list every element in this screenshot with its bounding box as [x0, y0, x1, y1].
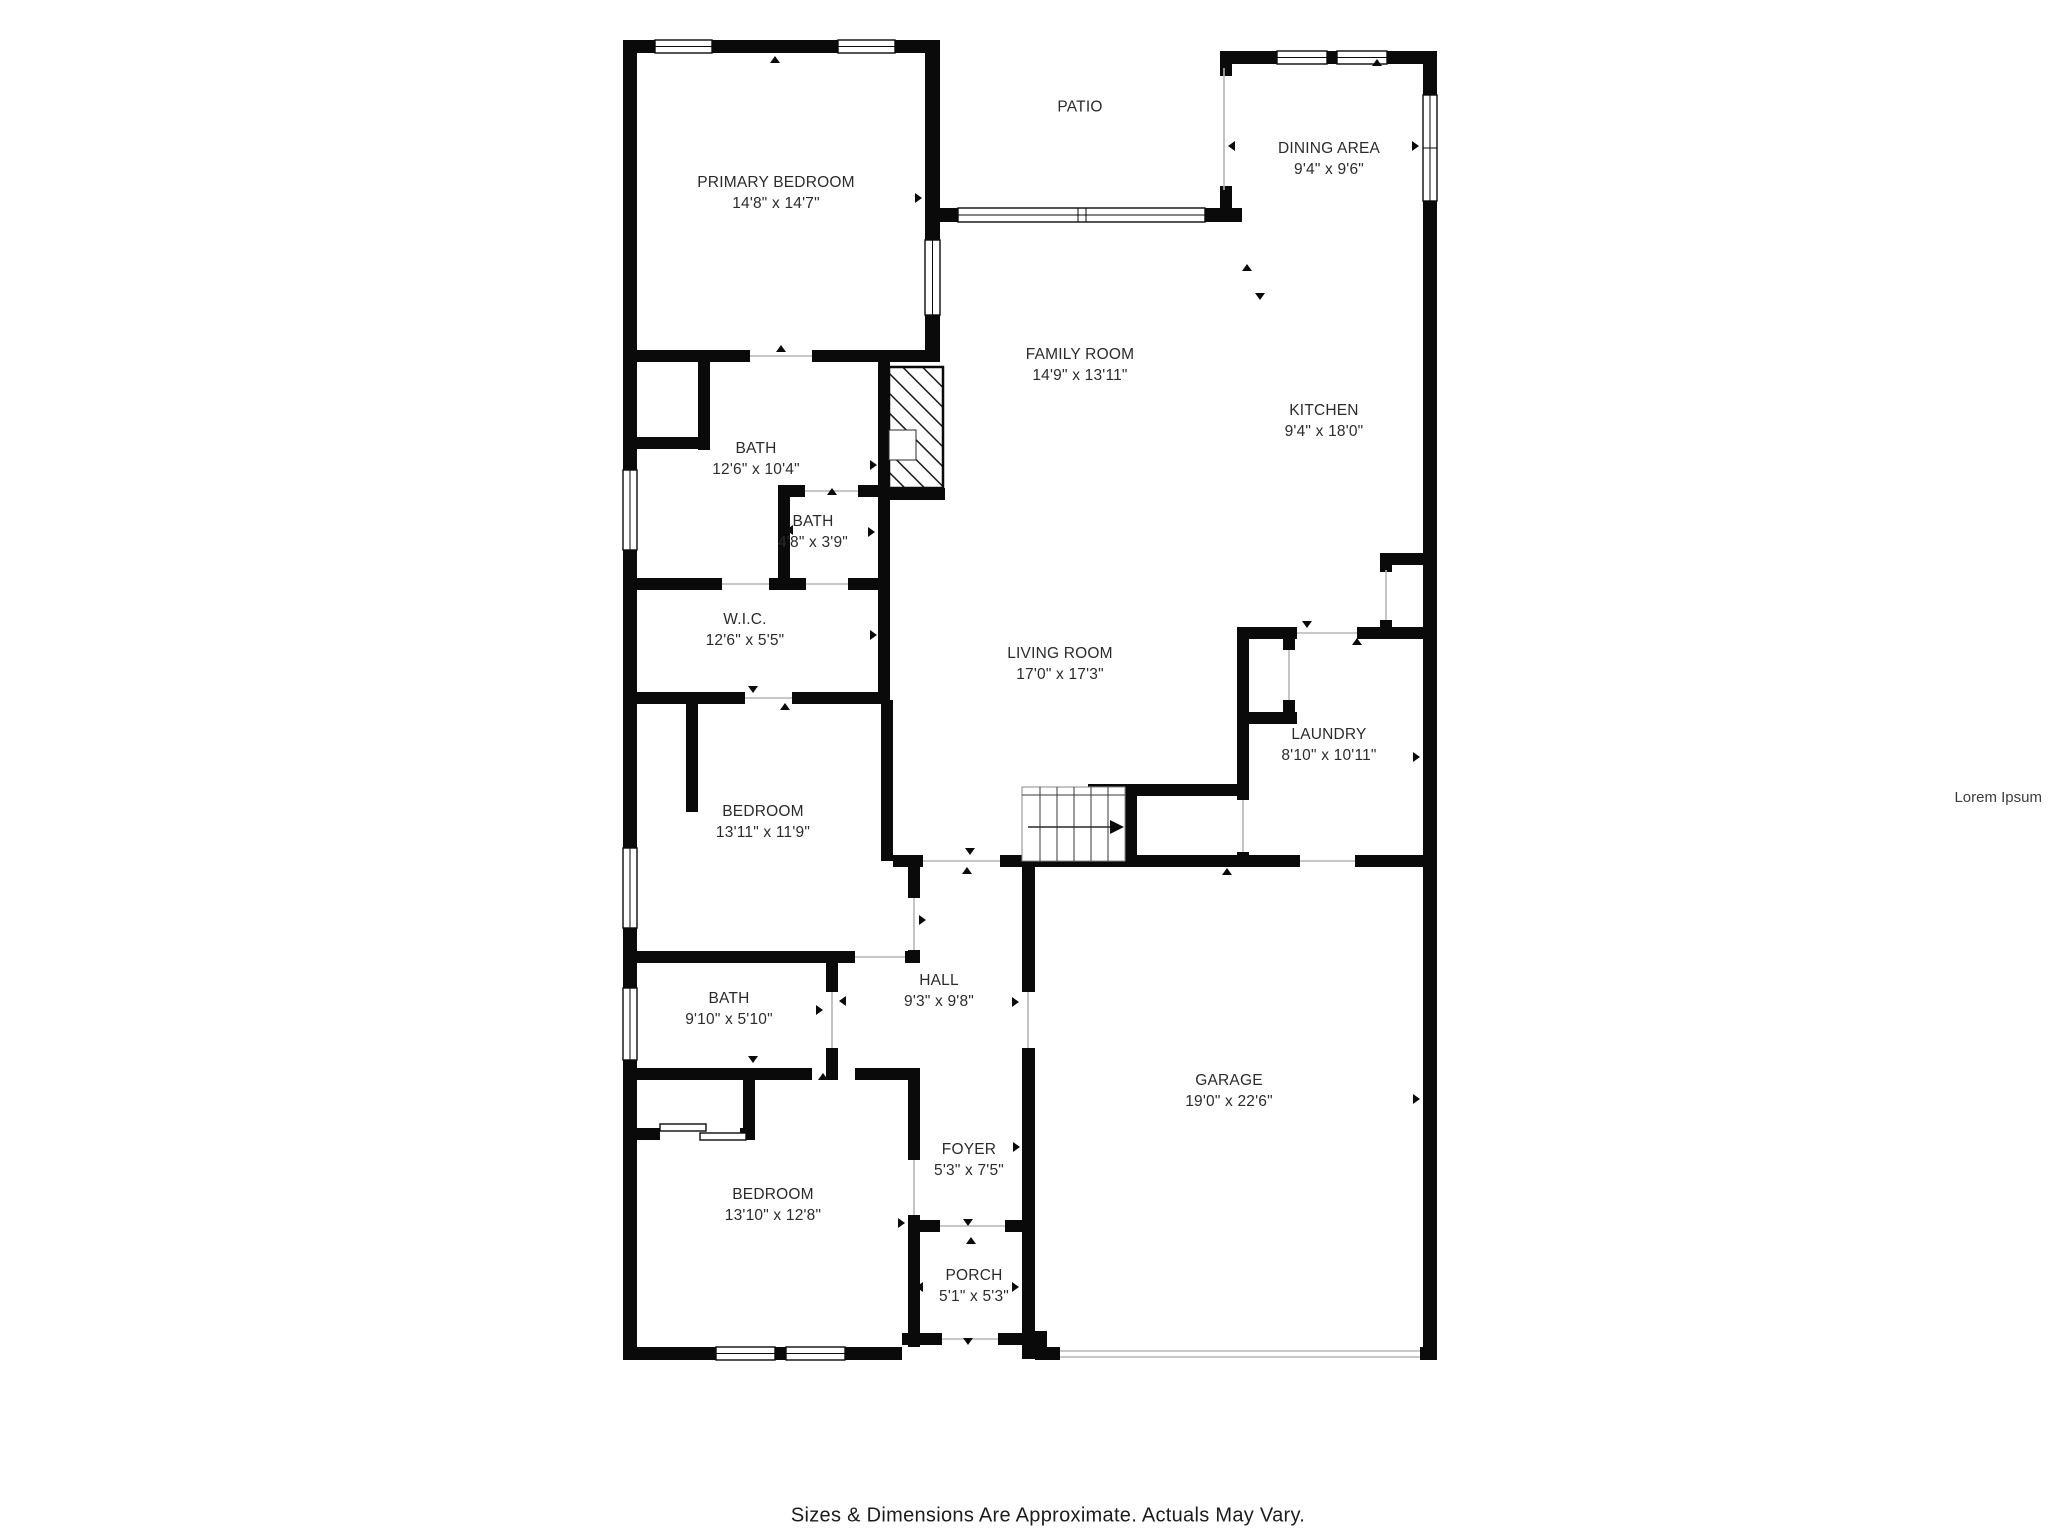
- room-label-laundry: LAUNDRY 8'10" x 10'11": [1281, 724, 1376, 766]
- room-label-garage: GARAGE 19'0" x 22'6": [1185, 1070, 1273, 1112]
- room-dims: 12'6" x 10'4": [712, 459, 800, 480]
- room-dims: 14'9" x 13'11": [1026, 365, 1134, 386]
- room-dims: 9'4" x 18'0": [1285, 421, 1364, 442]
- room-label-kitchen: KITCHEN 9'4" x 18'0": [1285, 400, 1364, 442]
- room-label-hall: HALL 9'3" x 9'8": [904, 970, 974, 1012]
- room-name: BATH: [685, 988, 773, 1009]
- room-label-dining-area: DINING AREA 9'4" x 9'6": [1278, 138, 1380, 180]
- room-dims: 4'8" x 3'9": [778, 532, 848, 553]
- room-dims: 9'4" x 9'6": [1278, 159, 1380, 180]
- window: [1337, 51, 1387, 64]
- window: [623, 470, 637, 550]
- room-dims: 17'0" x 17'3": [1007, 664, 1113, 685]
- room-dims: 13'10" x 12'8": [725, 1205, 821, 1226]
- footer-disclaimer: Sizes & Dimensions Are Approximate. Actu…: [791, 1505, 1305, 1528]
- door-openings: [722, 68, 1420, 1357]
- closet-sliding-door: [660, 1124, 746, 1140]
- room-label-bedroom-2: BEDROOM 13'11" x 11'9": [716, 801, 810, 843]
- sliding-glass-door: [958, 208, 1205, 222]
- room-dims: 12'6" x 5'5": [706, 630, 785, 651]
- room-label-bath-primary: BATH 12'6" x 10'4": [712, 438, 800, 480]
- page: { "watermark": "Lorem Ipsum", "footer": …: [0, 0, 2048, 1536]
- room-name: W.I.C.: [706, 609, 785, 630]
- window: [838, 40, 895, 53]
- room-label-foyer: FOYER 5'3" x 7'5": [934, 1139, 1004, 1181]
- room-label-primary-bedroom: PRIMARY BEDROOM 14'8" x 14'7": [697, 172, 854, 214]
- room-name: PRIMARY BEDROOM: [697, 172, 854, 193]
- room-dims: 9'3" x 9'8": [904, 991, 974, 1012]
- room-label-living-room: LIVING ROOM 17'0" x 17'3": [1007, 643, 1113, 685]
- room-label-wic: W.I.C. 12'6" x 5'5": [706, 609, 785, 651]
- room-name: LIVING ROOM: [1007, 643, 1113, 664]
- staircase: [1022, 787, 1125, 861]
- window: [655, 40, 712, 53]
- window: [925, 240, 940, 315]
- room-dims: 14'8" x 14'7": [697, 193, 854, 214]
- room-dims: 13'11" x 11'9": [716, 822, 810, 843]
- room-name: GARAGE: [1185, 1070, 1273, 1091]
- room-name: PATIO: [1057, 97, 1102, 118]
- room-name: KITCHEN: [1285, 400, 1364, 421]
- room-label-bath-hall: BATH 9'10" x 5'10": [685, 988, 773, 1030]
- room-label-porch: PORCH 5'1" x 5'3": [939, 1265, 1009, 1307]
- watermark: Lorem Ipsum: [1954, 789, 2042, 806]
- room-name: FOYER: [934, 1139, 1004, 1160]
- room-name: BEDROOM: [716, 801, 810, 822]
- room-name: BATH: [712, 438, 800, 459]
- window: [716, 1347, 775, 1360]
- window: [1423, 95, 1437, 201]
- room-dims: 8'10" x 10'11": [1281, 745, 1376, 766]
- room-label-bedroom-3: BEDROOM 13'10" x 12'8": [725, 1184, 821, 1226]
- room-label-family-room: FAMILY ROOM 14'9" x 13'11": [1026, 344, 1134, 386]
- room-name: BEDROOM: [725, 1184, 821, 1205]
- room-dims: 5'3" x 7'5": [934, 1160, 1004, 1181]
- room-dims: 19'0" x 22'6": [1185, 1091, 1273, 1112]
- floor-plan-drawing: [0, 0, 2048, 1536]
- room-dims: 5'1" x 5'3": [939, 1286, 1009, 1307]
- fireplace-chase: [889, 367, 943, 488]
- room-name: HALL: [904, 970, 974, 991]
- window: [1277, 51, 1327, 64]
- room-name: PORCH: [939, 1265, 1009, 1286]
- window: [623, 848, 637, 928]
- room-name: DINING AREA: [1278, 138, 1380, 159]
- room-dims: 9'10" x 5'10": [685, 1009, 773, 1030]
- floor-plan: PATIO PRIMARY BEDROOM 14'8" x 14'7" DINI…: [0, 0, 2048, 1536]
- window: [623, 988, 637, 1060]
- room-name: LAUNDRY: [1281, 724, 1376, 745]
- room-label-bath-small: BATH 4'8" x 3'9": [778, 511, 848, 553]
- room-name: FAMILY ROOM: [1026, 344, 1134, 365]
- room-label-patio: PATIO: [1057, 97, 1102, 118]
- room-name: BATH: [778, 511, 848, 532]
- window: [786, 1347, 845, 1360]
